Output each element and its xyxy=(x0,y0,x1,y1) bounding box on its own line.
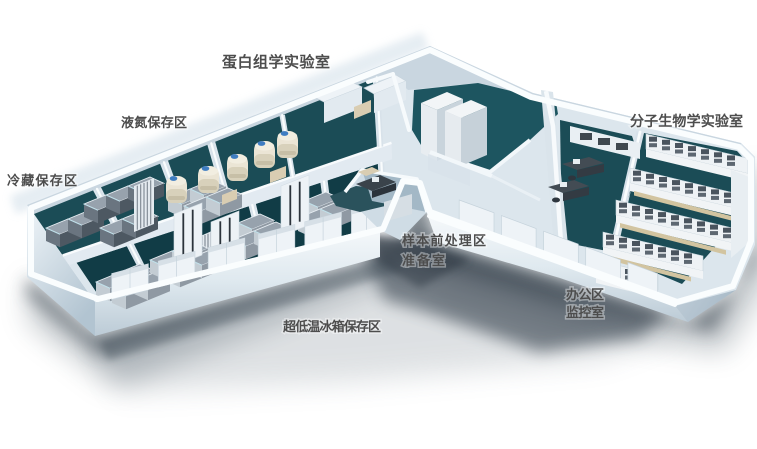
svg-text:冷藏保存区: 冷藏保存区 xyxy=(7,173,77,188)
svg-text:蛋白组学实验室: 蛋白组学实验室 xyxy=(222,53,330,71)
svg-text:准备室: 准备室 xyxy=(402,253,445,268)
svg-text:分子生物学实验室: 分子生物学实验室 xyxy=(630,113,743,129)
svg-text:超低温冰箱保存区: 超低温冰箱保存区 xyxy=(283,319,381,334)
svg-text:液氮保存区: 液氮保存区 xyxy=(121,115,187,130)
svg-text:样本前处理区: 样本前处理区 xyxy=(402,233,486,248)
svg-text:监控室: 监控室 xyxy=(566,305,604,320)
svg-text:办公区: 办公区 xyxy=(566,287,604,302)
